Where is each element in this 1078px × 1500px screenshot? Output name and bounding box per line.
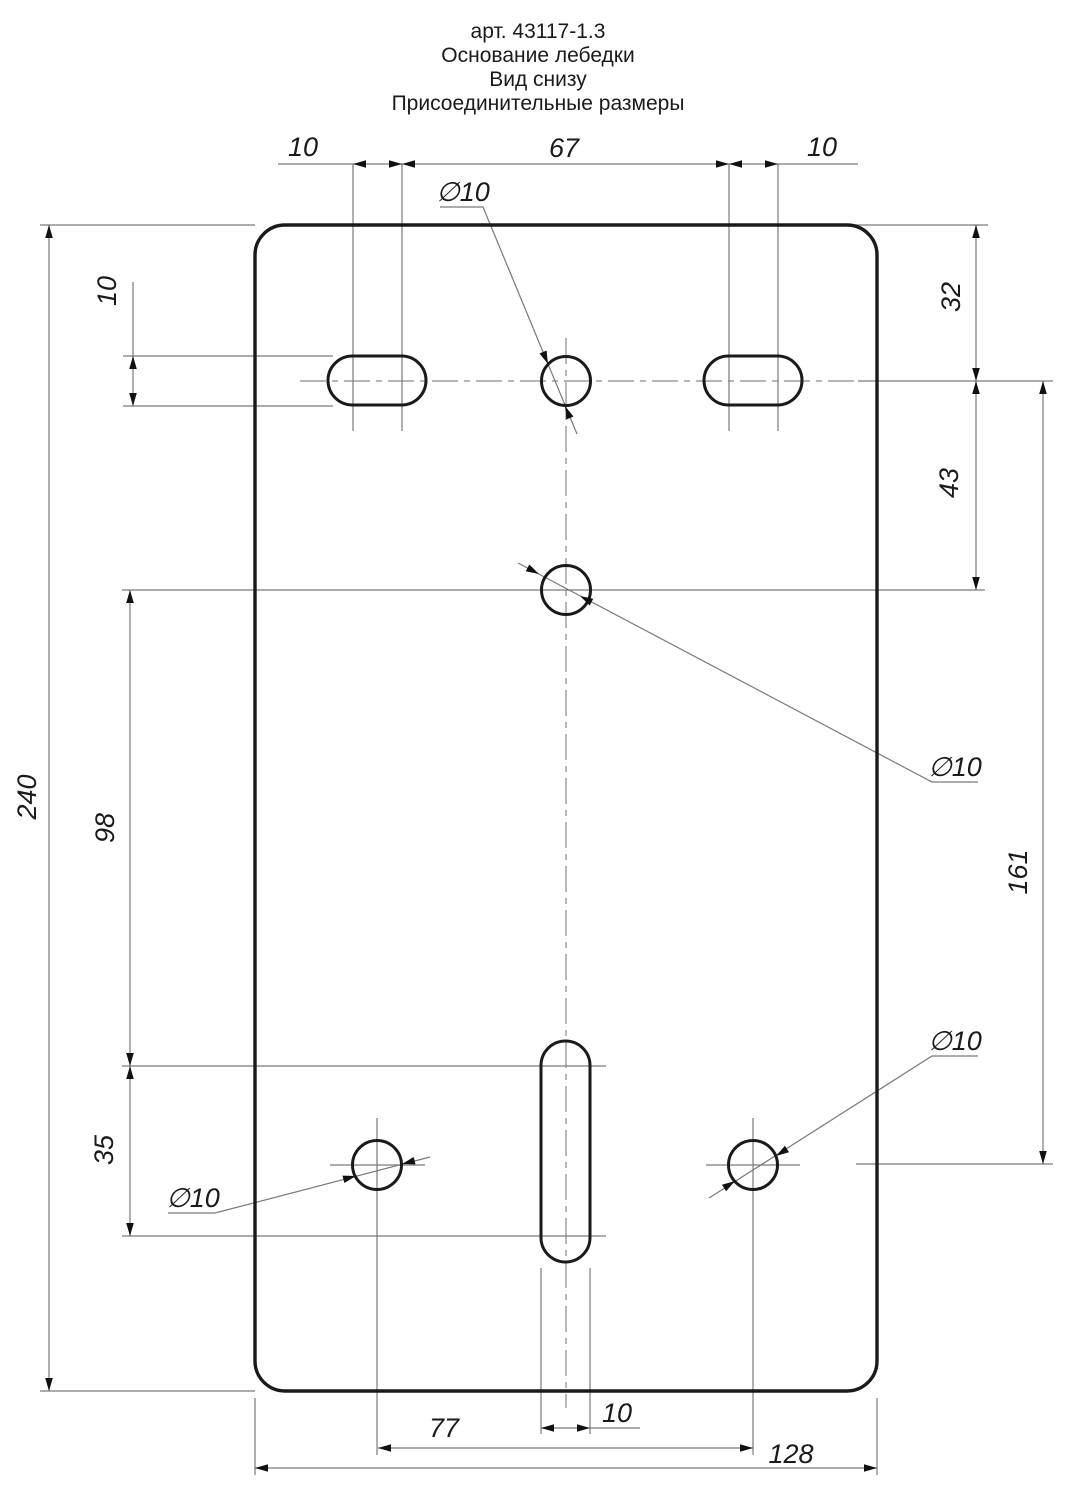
- arrow: [541, 1424, 554, 1432]
- arrow: [45, 1378, 53, 1391]
- dim-left-98: 98: [90, 813, 120, 843]
- dim-top-left-10: 10: [288, 132, 318, 162]
- dim-top-right-10: 10: [807, 132, 837, 162]
- dimension-labels: 10 67 10 240 10 98 35 32 43 161 77 10 12…: [12, 132, 1033, 1469]
- arrow: [402, 160, 415, 168]
- arrow: [126, 590, 134, 603]
- dim-right-32: 32: [936, 282, 966, 312]
- dia-label-middle: ∅10: [928, 752, 982, 782]
- arrow: [972, 577, 980, 590]
- drawing-title: арт. 43117-1.3 Основание лебедки Вид сни…: [392, 20, 685, 115]
- arrow: [864, 1464, 877, 1472]
- dim-left-slot-10: 10: [92, 276, 122, 306]
- arrow: [1039, 1151, 1047, 1164]
- title-part-name: Основание лебедки: [441, 44, 634, 67]
- arrow: [126, 1066, 134, 1079]
- title-article: арт. 43117-1.3: [471, 20, 606, 43]
- center-lines: [300, 338, 858, 1408]
- title-subtitle: Присоединительные размеры: [392, 92, 685, 115]
- leader-arrow: [401, 1157, 415, 1168]
- arrow: [740, 1444, 753, 1452]
- arrow: [45, 225, 53, 238]
- arrow: [126, 1223, 134, 1236]
- drawing-canvas: арт. 43117-1.3 Основание лебедки Вид сни…: [0, 0, 1078, 1500]
- arrow: [972, 381, 980, 394]
- dia-label-bottom-left: ∅10: [166, 1183, 220, 1213]
- arrow: [126, 1053, 134, 1066]
- dim-bottom-77: 77: [429, 1413, 460, 1443]
- arrow: [716, 160, 729, 168]
- dim-left-35: 35: [89, 1134, 119, 1165]
- drawing-page: арт. 43117-1.3 Основание лебедки Вид сни…: [0, 0, 1078, 1500]
- dim-left-240: 240: [12, 774, 42, 820]
- leader-middle-hole: [518, 563, 978, 782]
- dim-bottom-10: 10: [602, 1398, 632, 1428]
- dimension-arrows: [45, 160, 1047, 1472]
- dia-label-bottom-right: ∅10: [928, 1026, 982, 1056]
- dia-label-top: ∅10: [436, 177, 490, 207]
- arrow: [255, 1464, 268, 1472]
- arrow: [729, 160, 742, 168]
- dim-bottom-128: 128: [768, 1439, 813, 1469]
- leader-arrow: [526, 565, 541, 578]
- arrow: [765, 160, 778, 168]
- arrow: [129, 356, 137, 369]
- leader-bottom-right-hole: [709, 1056, 978, 1198]
- arrow: [389, 160, 402, 168]
- arrow: [129, 393, 137, 406]
- arrow: [353, 160, 366, 168]
- title-view: Вид снизу: [489, 68, 587, 91]
- arrow: [972, 225, 980, 238]
- arrow: [577, 1424, 590, 1432]
- arrow: [972, 368, 980, 381]
- leader-top-hole: [440, 207, 577, 434]
- dim-top-67: 67: [549, 133, 580, 163]
- dim-right-161: 161: [1003, 849, 1033, 894]
- arrow: [1039, 381, 1047, 394]
- arrow: [378, 1444, 391, 1452]
- dim-right-43: 43: [934, 468, 964, 498]
